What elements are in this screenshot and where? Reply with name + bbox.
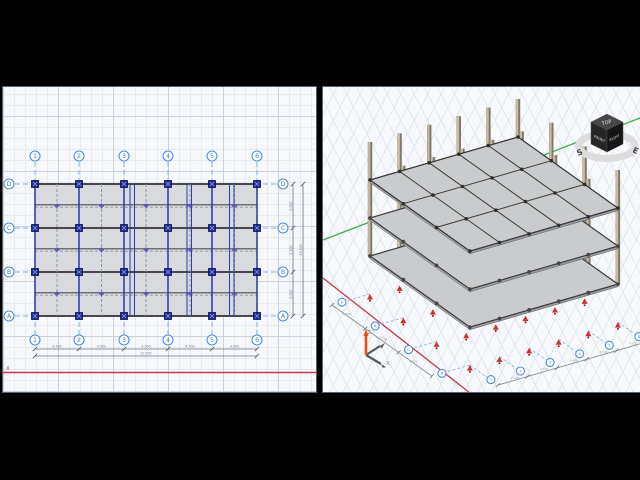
joint (468, 287, 472, 291)
svg-text:4.500: 4.500 (511, 376, 519, 380)
svg-text:4.500: 4.500 (141, 345, 150, 349)
svg-text:X: X (386, 361, 390, 367)
grid-bubble-right: B (278, 267, 288, 277)
support-marker (582, 298, 588, 306)
column-marker (209, 313, 216, 320)
joint (435, 264, 439, 268)
svg-text:4.500: 4.500 (343, 312, 351, 316)
column-marker (76, 313, 83, 320)
joint (527, 308, 531, 312)
svg-text:4.500: 4.500 (599, 350, 607, 354)
joint (368, 216, 372, 220)
column-marker (209, 181, 216, 188)
grid-bubble-top: 1 (30, 151, 40, 161)
svg-text:3: 3 (122, 153, 126, 160)
svg-text:B: B (7, 269, 11, 276)
column-3d (488, 108, 489, 146)
grid-bubble-3d: A (338, 298, 346, 306)
svg-text:4.500: 4.500 (97, 345, 106, 349)
grid-extension (588, 331, 605, 343)
joint (368, 254, 372, 258)
column-marker (121, 225, 128, 232)
support-marker (397, 285, 403, 293)
column-marker (254, 225, 261, 232)
x-axis-label: X (6, 366, 10, 372)
column-marker (209, 269, 216, 276)
grid-bubble-3d: D (438, 369, 446, 377)
grid-bubble-3d: 6 (635, 333, 640, 341)
grid-bubble-right: D (278, 179, 288, 189)
svg-text:4.500: 4.500 (289, 289, 293, 298)
svg-text:4.500: 4.500 (289, 201, 293, 210)
dimension-chain-3d-right: 4.5004.5004.5004.5004.500 (496, 340, 640, 387)
svg-text:4.500: 4.500 (185, 345, 194, 349)
column-3d (617, 170, 618, 208)
svg-text:2: 2 (77, 153, 81, 160)
dimension-chain-right: 4.5004.5004.50013.500 (289, 182, 305, 318)
column-3d (517, 99, 518, 137)
column-marker (165, 269, 172, 276)
svg-text:2: 2 (519, 369, 521, 373)
grid-extension (470, 365, 487, 377)
svg-text:22.500: 22.500 (140, 352, 151, 356)
svg-text:D: D (7, 181, 12, 188)
column-marker (32, 269, 39, 276)
svg-text:3: 3 (122, 337, 126, 344)
svg-text:4: 4 (166, 337, 170, 344)
plan-viewport[interactable]: 112233445566DDCCBBAA4.5004.5004.5004.500… (2, 86, 317, 393)
column-marker (165, 313, 172, 320)
iso-3d-viewport[interactable]: ABCD1234564.5004.5004.5004.5004.5004.500… (322, 86, 640, 393)
grid-bubble-3d: 4 (576, 350, 584, 358)
grid-bubble-bottom: 1 (30, 335, 40, 345)
svg-text:6: 6 (255, 153, 259, 160)
column-marker (165, 225, 172, 232)
grid-bubble-bottom: 5 (207, 335, 217, 345)
svg-text:4.500: 4.500 (376, 336, 384, 340)
grid-bubble-top: 6 (252, 151, 262, 161)
svg-text:13.500: 13.500 (299, 244, 303, 255)
grid-bubble-right: C (278, 223, 288, 233)
support-marker (430, 309, 436, 317)
joint (498, 279, 502, 283)
dimension-chain-bottom: 4.5004.5004.5004.5004.50022.500 (33, 345, 259, 359)
grid-extension (346, 294, 370, 301)
column-3d (369, 180, 370, 218)
grid-bubble-right: A (278, 311, 288, 321)
column-3d (399, 133, 400, 171)
joint (401, 278, 405, 282)
grid-bubble-top: 5 (207, 151, 217, 161)
column-marker (254, 313, 261, 320)
support-marker (400, 318, 406, 326)
plan-drawing: 112233445566DDCCBBAA4.5004.5004.5004.500… (3, 87, 316, 392)
svg-text:5: 5 (210, 337, 214, 344)
grid-bubble-3d: 2 (517, 367, 525, 375)
svg-text:C: C (7, 225, 11, 232)
grid-bubble-left: D (4, 179, 14, 189)
application-window: 112233445566DDCCBBAA4.5004.5004.5004.500… (0, 0, 640, 480)
support-marker (367, 294, 373, 302)
grid-bubble-3d: 1 (487, 376, 495, 384)
column-marker (76, 269, 83, 276)
grid-extension (500, 357, 517, 369)
column-marker (121, 313, 128, 320)
svg-text:4.500: 4.500 (629, 341, 637, 345)
column-marker (121, 181, 128, 188)
joint (586, 253, 590, 257)
grid-bubble-top: 4 (163, 151, 173, 161)
svg-text:4.500: 4.500 (409, 359, 417, 363)
joint (557, 261, 561, 265)
grid-bubble-3d: 3 (546, 358, 554, 366)
grid-bubble-3d: B (371, 322, 379, 330)
iso-3d-drawing: ABCD1234564.5004.5004.5004.5004.5004.500… (323, 87, 640, 392)
column-marker (76, 181, 83, 188)
svg-text:D: D (281, 181, 286, 188)
grid-bubble-bottom: 2 (74, 335, 84, 345)
svg-text:5: 5 (210, 153, 214, 160)
column-3d (617, 246, 618, 284)
support-marker (463, 333, 469, 341)
grid-bubble-3d: 5 (605, 341, 613, 349)
grid-bubble-top: 2 (74, 151, 84, 161)
grid-extension (618, 322, 635, 334)
grid-extension (559, 339, 576, 351)
svg-text:C: C (281, 225, 285, 232)
grid-bubble-top: 3 (119, 151, 129, 161)
svg-text:4.500: 4.500 (289, 245, 293, 254)
column-3d (428, 125, 429, 163)
grid-bubble-3d: C (405, 346, 413, 354)
grid-bubble-left: B (4, 267, 14, 277)
view-cube[interactable]: SETOPFRONTRIGHT (575, 114, 639, 159)
svg-text:Y: Y (383, 338, 388, 344)
column-3d (458, 116, 459, 154)
grid-bubble-bottom: 3 (119, 335, 129, 345)
column-3d (369, 142, 370, 180)
column-marker (32, 181, 39, 188)
svg-text:6: 6 (255, 337, 259, 344)
svg-text:4.500: 4.500 (570, 359, 578, 363)
svg-text:4.500: 4.500 (540, 367, 548, 371)
grid-bubble-bottom: 4 (163, 335, 173, 345)
joint (616, 244, 620, 248)
svg-text:4.500: 4.500 (52, 345, 61, 349)
svg-text:1: 1 (490, 378, 492, 382)
joint (468, 325, 472, 329)
support-marker (493, 324, 499, 332)
grid-extension (446, 365, 470, 372)
support-marker (434, 341, 440, 349)
column-marker (254, 269, 261, 276)
joint (557, 299, 561, 303)
joint (616, 282, 620, 286)
dimension-chain-3d-left: 4.5004.5004.500 (330, 303, 434, 378)
column-marker (32, 225, 39, 232)
grid-extension (529, 348, 546, 360)
column-marker (32, 313, 39, 320)
column-marker (209, 225, 216, 232)
svg-text:B: B (281, 269, 285, 276)
support-marker (552, 307, 558, 315)
svg-text:5: 5 (608, 344, 610, 348)
joint (527, 270, 531, 274)
joint (586, 291, 590, 295)
svg-text:1: 1 (33, 337, 37, 344)
grid-bubble-bottom: 6 (252, 335, 262, 345)
column-marker (76, 225, 83, 232)
svg-text:D: D (441, 372, 444, 376)
svg-text:1: 1 (33, 153, 37, 160)
grid-extension (379, 318, 403, 325)
column-marker (121, 269, 128, 276)
svg-text:4.500: 4.500 (230, 345, 239, 349)
joint (401, 240, 405, 244)
grid-bubble-left: C (4, 223, 14, 233)
svg-text:Z: Z (368, 330, 372, 336)
joint (498, 317, 502, 321)
column-3d (617, 208, 618, 246)
joint (435, 302, 439, 306)
column-marker (165, 181, 172, 188)
svg-text:3: 3 (549, 361, 551, 365)
column-3d (551, 123, 552, 161)
column-3d (369, 218, 370, 256)
svg-text:4: 4 (579, 352, 581, 356)
support-marker (522, 316, 528, 324)
svg-text:4: 4 (166, 153, 170, 160)
column-marker (254, 181, 261, 188)
svg-text:2: 2 (77, 337, 81, 344)
grid-bubble-left: A (4, 311, 14, 321)
grid-extension (413, 341, 437, 348)
